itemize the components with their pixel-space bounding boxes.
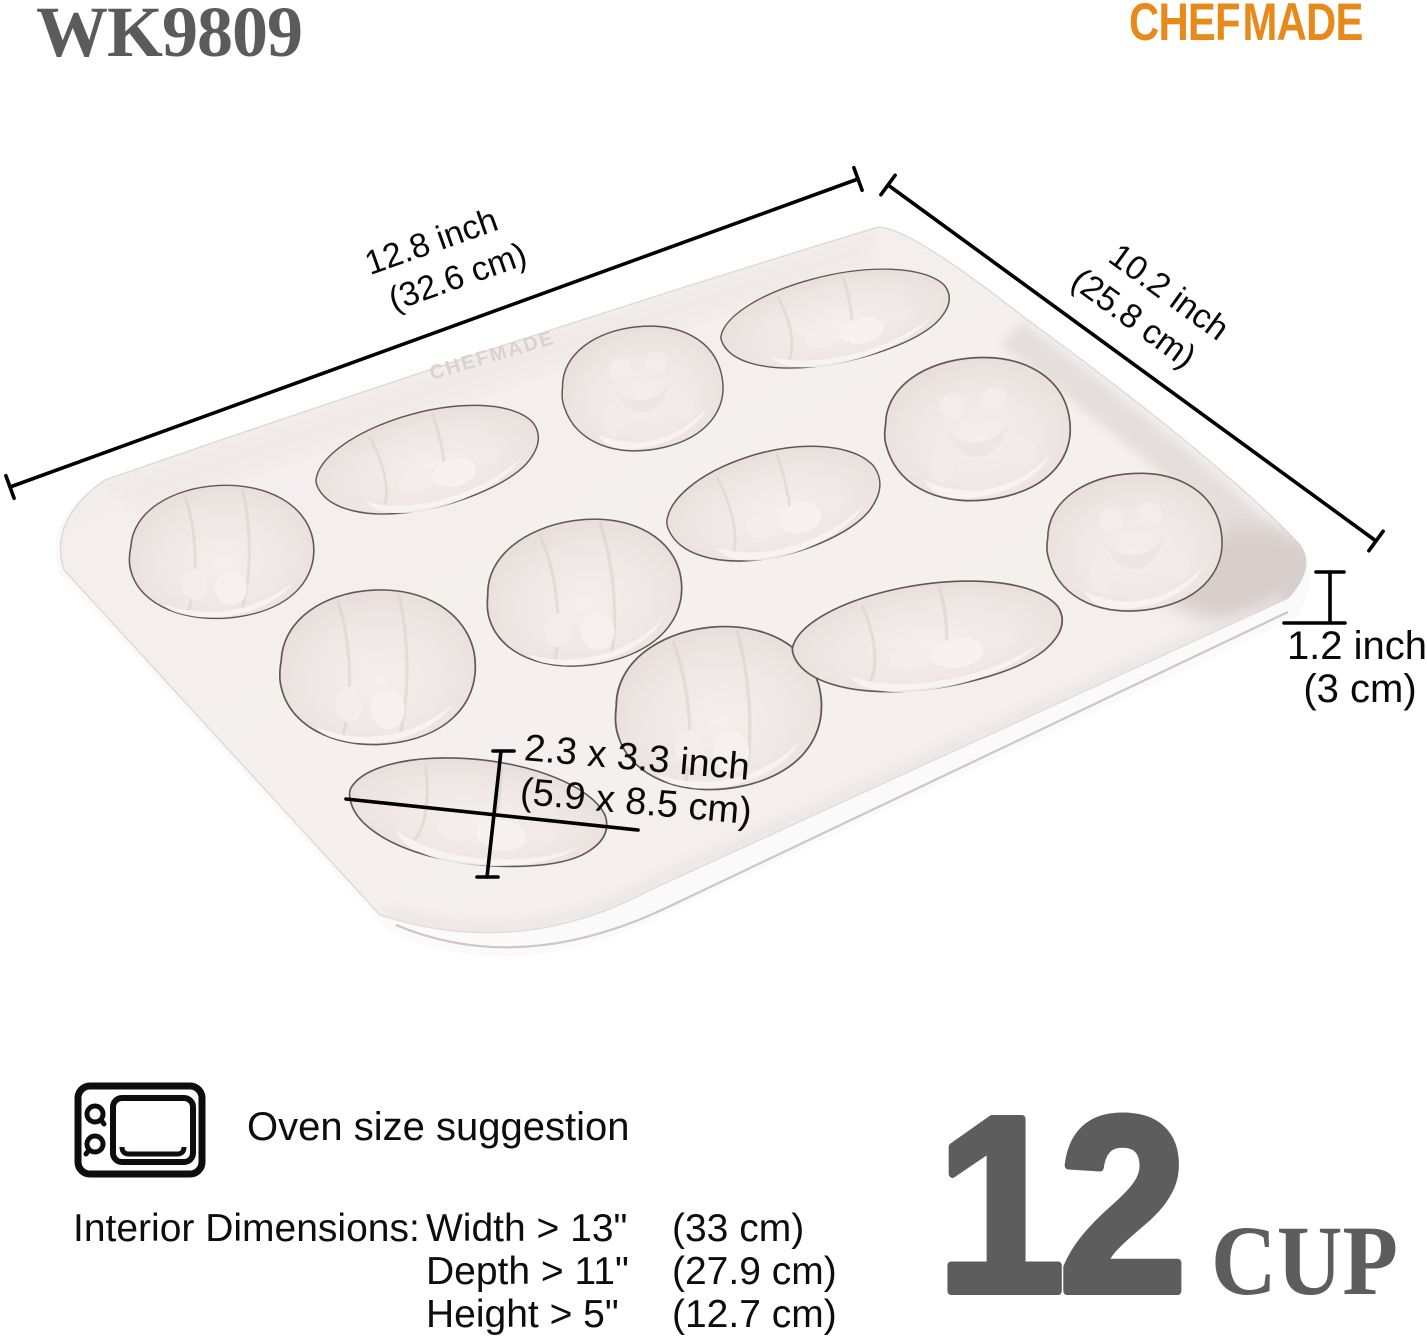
svg-text:(3 cm): (3 cm) xyxy=(1303,667,1416,711)
svg-text:1.2 inch: 1.2 inch xyxy=(1287,624,1427,668)
svg-text:(12.7 cm): (12.7 cm) xyxy=(672,1293,837,1336)
svg-text:(33 cm): (33 cm) xyxy=(672,1207,804,1250)
svg-text:(27.9 cm): (27.9 cm) xyxy=(672,1250,837,1293)
svg-text:Width > 13": Width > 13" xyxy=(426,1207,627,1250)
svg-text:Oven size suggestion: Oven size suggestion xyxy=(247,1105,629,1149)
svg-text:Interior Dimensions:: Interior Dimensions: xyxy=(73,1207,420,1250)
svg-text:12: 12 xyxy=(937,1065,1182,1338)
svg-text:Depth > 11": Depth > 11" xyxy=(426,1250,629,1293)
svg-text:CHEF MADE: CHEF MADE xyxy=(1129,0,1363,52)
svg-text:Height > 5": Height > 5" xyxy=(426,1293,619,1336)
svg-text:CUP: CUP xyxy=(1211,1205,1398,1316)
svg-text:WK9809: WK9809 xyxy=(36,0,302,72)
